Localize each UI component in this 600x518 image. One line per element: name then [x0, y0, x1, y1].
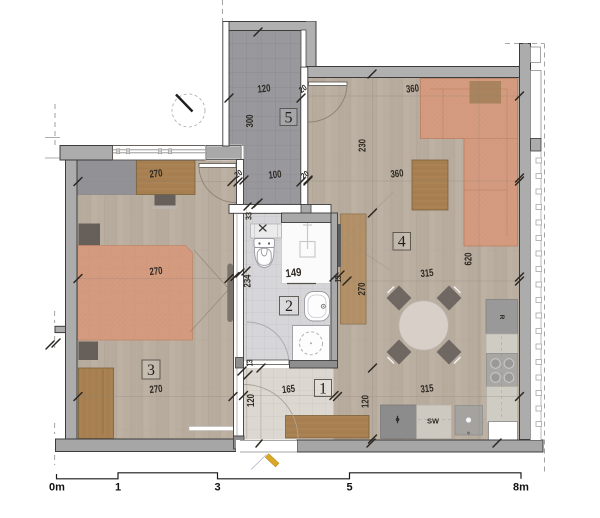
svg-text:100: 100	[268, 168, 282, 181]
svg-text:120: 120	[360, 395, 372, 408]
svg-text:230: 230	[357, 139, 369, 152]
svg-text:270: 270	[149, 265, 163, 278]
svg-text:8m: 8m	[513, 482, 529, 494]
svg-text:315: 315	[420, 382, 434, 395]
svg-text:120: 120	[257, 82, 271, 95]
svg-text:300: 300	[244, 114, 256, 127]
svg-text:315: 315	[420, 267, 434, 280]
svg-text:120: 120	[245, 394, 257, 407]
svg-text:3: 3	[214, 482, 220, 494]
svg-text:165: 165	[281, 383, 295, 396]
svg-text:1: 1	[319, 381, 327, 398]
svg-text:2: 2	[285, 298, 293, 315]
svg-text:1: 1	[115, 482, 121, 494]
svg-text:0m: 0m	[49, 482, 65, 494]
svg-text:4: 4	[398, 234, 406, 251]
svg-text:620: 620	[463, 252, 475, 265]
svg-text:R: R	[498, 315, 505, 320]
svg-text:33: 33	[244, 212, 254, 220]
svg-text:5: 5	[285, 110, 293, 127]
svg-text:13: 13	[333, 275, 343, 282]
svg-text:270: 270	[149, 383, 163, 396]
svg-text:13: 13	[245, 359, 255, 366]
svg-text:360: 360	[390, 167, 404, 180]
svg-text:149: 149	[285, 267, 302, 281]
svg-text:360: 360	[405, 82, 419, 95]
svg-text:270: 270	[356, 282, 368, 295]
svg-text:270: 270	[149, 167, 163, 180]
svg-text:3: 3	[147, 362, 155, 379]
svg-text:234: 234	[242, 274, 254, 287]
svg-text:5: 5	[346, 482, 352, 494]
svg-text:SW: SW	[427, 417, 440, 426]
